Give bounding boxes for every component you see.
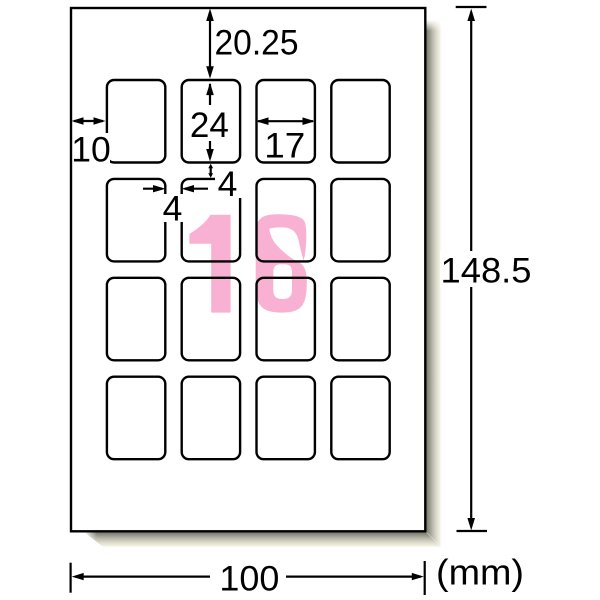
svg-text:24: 24	[190, 105, 229, 145]
svg-text:148.5: 148.5	[441, 251, 532, 291]
svg-text:20.25: 20.25	[215, 23, 299, 63]
svg-text:100: 100	[219, 559, 279, 599]
svg-text:(mm): (mm)	[436, 552, 524, 593]
svg-text:17: 17	[264, 126, 305, 166]
svg-text:4: 4	[163, 189, 183, 229]
svg-text:4: 4	[218, 164, 238, 204]
svg-text:10: 10	[71, 130, 111, 170]
